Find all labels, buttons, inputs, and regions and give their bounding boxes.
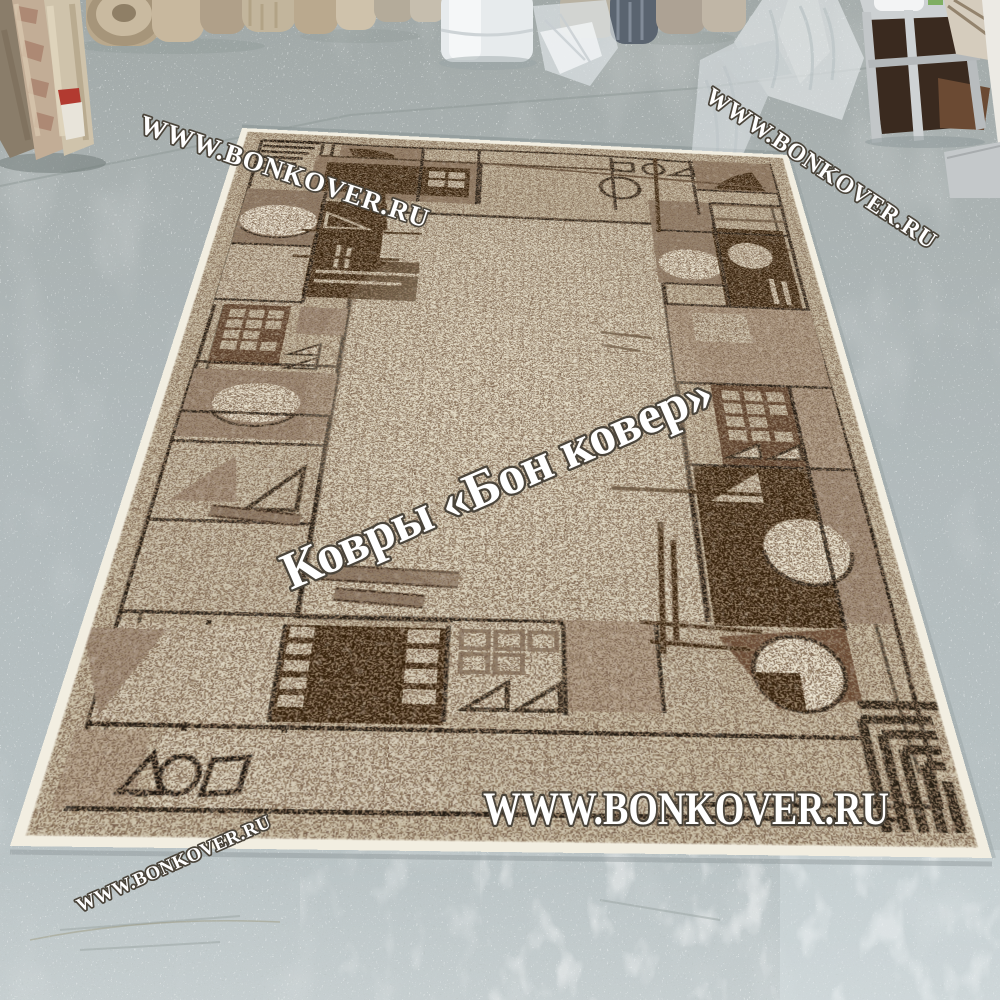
svg-text:Ковры «Бон ковер»: Ковры «Бон ковер» xyxy=(273,363,722,601)
svg-text:WWW.BONKOVER.RU: WWW.BONKOVER.RU xyxy=(73,812,274,917)
svg-text:WWW.BONKOVER.RU: WWW.BONKOVER.RU xyxy=(701,83,942,255)
svg-text:WWW.BONKOVER.RU: WWW.BONKOVER.RU xyxy=(483,783,889,835)
svg-text:WWW.BONKOVER.RU: WWW.BONKOVER.RU xyxy=(136,109,433,234)
